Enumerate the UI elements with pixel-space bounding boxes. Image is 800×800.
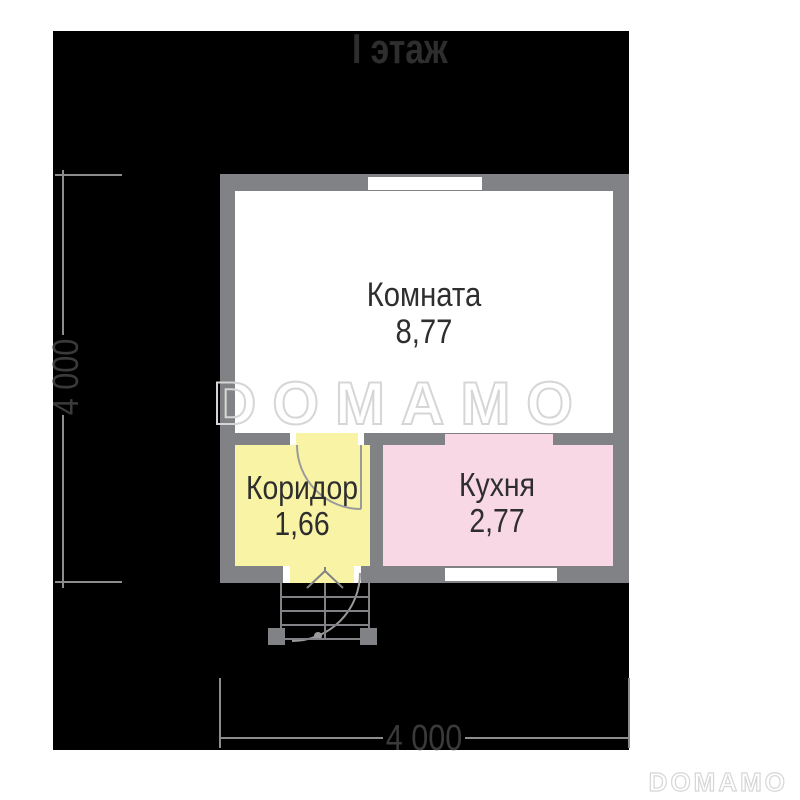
interior-door-opening [296, 433, 358, 445]
room-name: Комната [367, 277, 482, 314]
room-area: 2,77 [459, 503, 535, 539]
window-top [368, 177, 482, 190]
room-label-kuhnya: Кухня 2,77 [453, 467, 541, 539]
room-area: 1,66 [246, 506, 358, 542]
room-name: Кухня [459, 467, 535, 503]
interior-door-jamb-left [290, 433, 296, 445]
background-mask-bottom [53, 583, 629, 750]
entry-door-jamb-right [354, 566, 361, 583]
room-label-komnata: Комната 8,77 [357, 277, 490, 351]
room-name: Коридор [246, 470, 358, 506]
watermark-corner: DOMAMO [649, 767, 788, 797]
floor-title-text: I этаж [352, 27, 448, 71]
room-label-koridor: Коридор 1,66 [237, 470, 367, 542]
entry-door-opening [290, 566, 354, 583]
kitchen-passage-opening [445, 434, 553, 445]
floor-title: I этаж [0, 27, 800, 71]
interior-door-jamb-right [358, 433, 364, 445]
floor-plan-page: I этаж DOMAMO 4 000 4 000 [0, 0, 800, 800]
entry-door-jamb-left [283, 566, 290, 583]
room-area: 8,77 [367, 314, 482, 351]
window-kitchen [445, 568, 557, 581]
